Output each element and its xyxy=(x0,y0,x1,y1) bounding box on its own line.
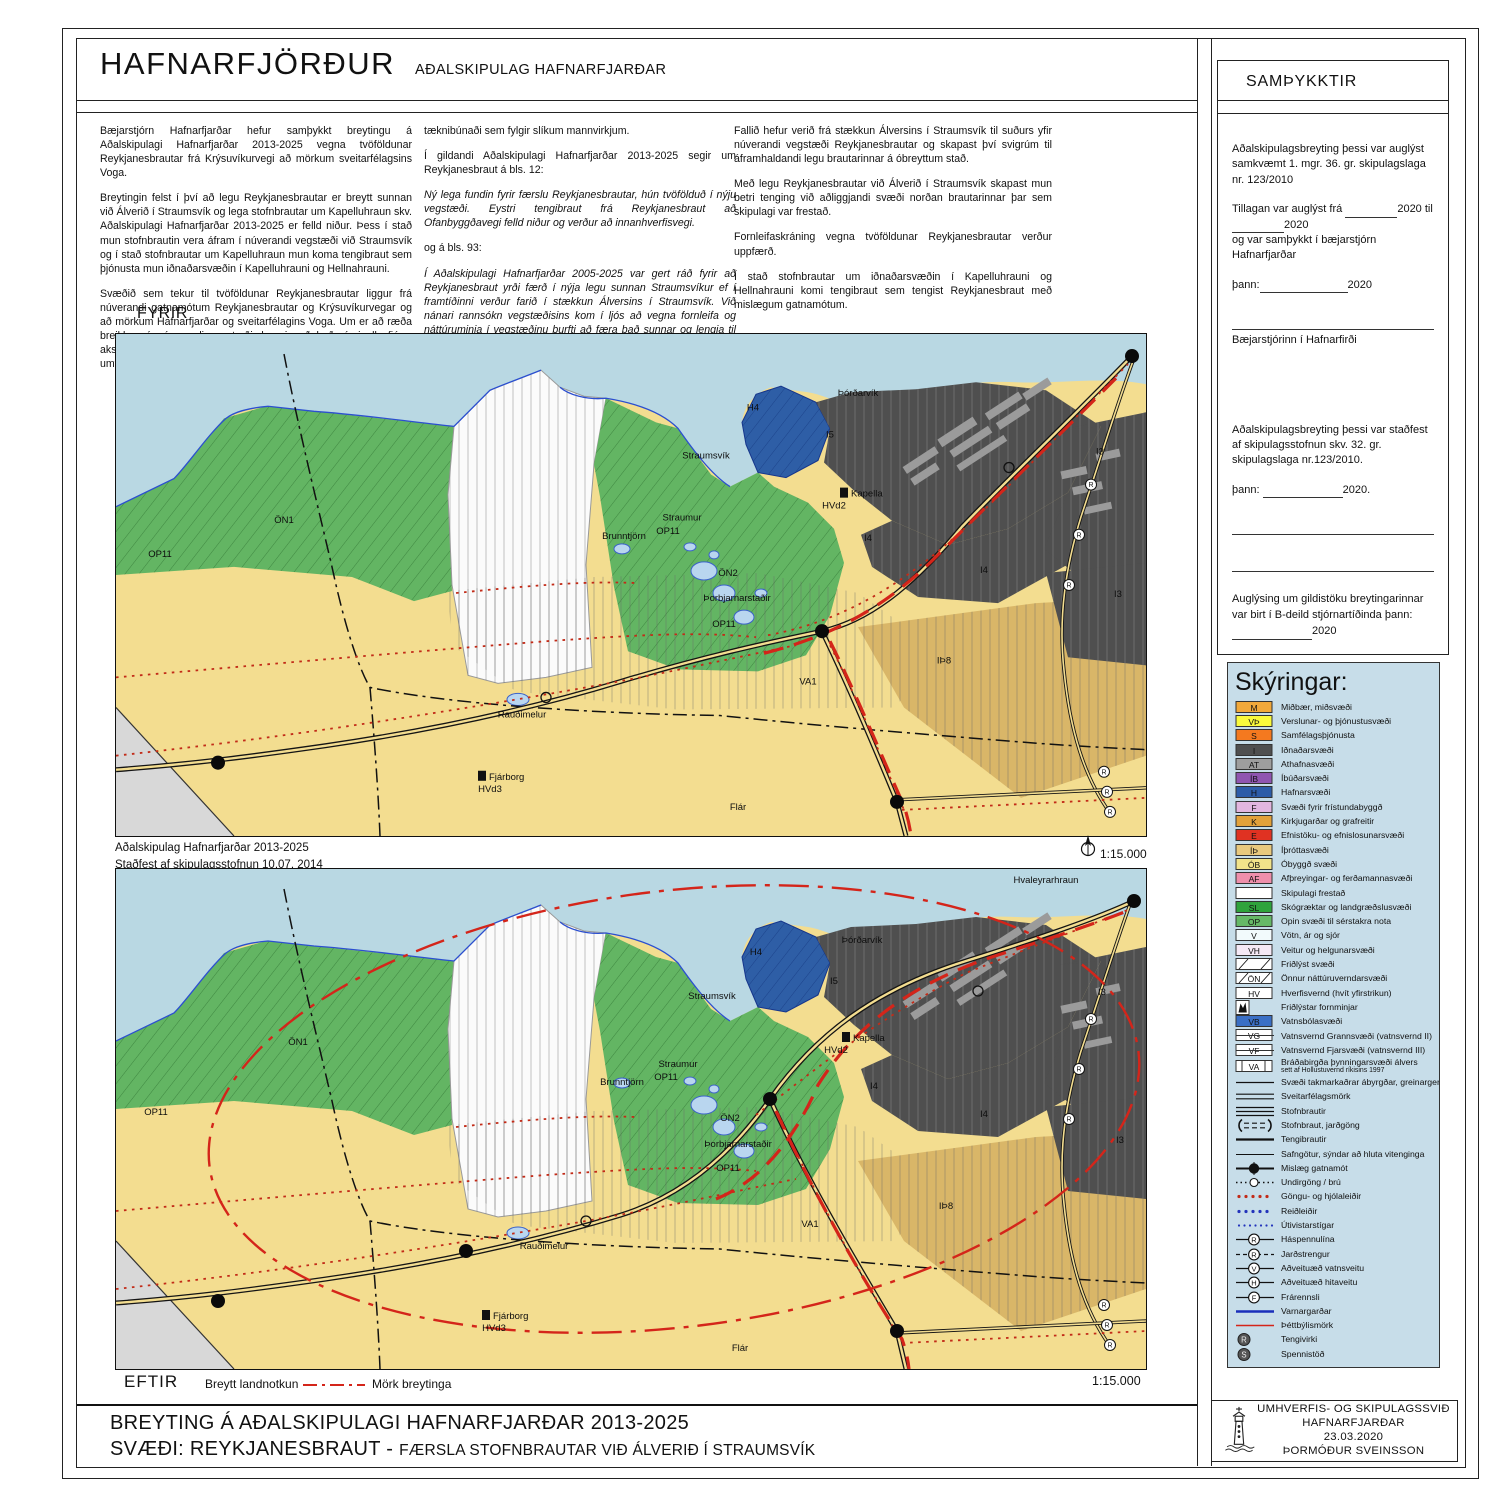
legend-swatch-line-double xyxy=(1235,1089,1277,1104)
intro-paragraph: Breytingin felst í því að legu Reykjanes… xyxy=(100,191,412,275)
svg-text:I4: I4 xyxy=(980,565,988,576)
column-divider xyxy=(1197,38,1198,1466)
svg-text:R: R xyxy=(1088,1017,1093,1024)
map-after: RRRRRRÖN1OP11BrunntjörnStraumurOP11Strau… xyxy=(115,868,1147,1370)
svg-text:Fjárborg: Fjárborg xyxy=(489,772,524,783)
legend-label: Stofnbrautir xyxy=(1281,1107,1326,1116)
approvals-panel: SAMÞYKKTIR Aðalskipulagsbreyting þessi v… xyxy=(1217,60,1449,655)
legend-item: VVötn, ár og sjór xyxy=(1228,929,1439,943)
legend-label: Aðveituæð vatnsveitu xyxy=(1281,1264,1364,1273)
legend-item: FFrárennsli xyxy=(1228,1290,1439,1304)
svg-text:Þórðarvík: Þórðarvík xyxy=(838,388,879,399)
svg-text:R: R xyxy=(1066,583,1071,590)
legend-label: Skógræktar og landgræðslusvæði xyxy=(1281,903,1411,912)
svg-text:Flár: Flár xyxy=(732,1343,748,1354)
approvals-p4: Aðalskipulagsbreyting þessi var staðfest… xyxy=(1232,423,1434,469)
approvals-p3: þann:2020 xyxy=(1232,278,1434,293)
legend-swatch-circle-letter: V xyxy=(1235,1261,1277,1276)
scale-after: 1:15.000 xyxy=(1092,1374,1141,1388)
svg-text:I4: I4 xyxy=(980,1109,988,1120)
legend-label: Hverfisvernd (hvít yfirstrikun) xyxy=(1281,989,1392,998)
legend-label: Jarðstrengur xyxy=(1281,1250,1330,1259)
svg-text:R: R xyxy=(1101,769,1106,776)
legend-label: Háspennulína xyxy=(1281,1235,1335,1244)
legend-swatch-I: I xyxy=(1235,743,1277,758)
legend-label: Svæði fyrir frístundabyggð xyxy=(1281,803,1382,812)
legend-swatch-AT: AT xyxy=(1235,757,1277,772)
legend-item: VHVeitur og helgunarsvæði xyxy=(1228,943,1439,957)
legend-item: Safngötur, sýndar að hluta vitenginga xyxy=(1228,1147,1439,1161)
svg-text:Kapella: Kapella xyxy=(851,489,883,500)
svg-text:F: F xyxy=(1252,1293,1257,1302)
svg-text:HV: HV xyxy=(1248,989,1260,999)
legend-swatch-monument xyxy=(1235,1000,1277,1015)
svg-text:Fjárborg: Fjárborg xyxy=(493,1311,528,1322)
legend-label: Útivistarstígar xyxy=(1281,1221,1334,1230)
legend-item: Tengibrautir xyxy=(1228,1133,1439,1147)
approvals-heading-band xyxy=(1218,101,1448,114)
approvals-p1: Aðalskipulagsbreyting þessi var auglýst … xyxy=(1232,142,1434,188)
legend-swatch-dots-red xyxy=(1235,1189,1277,1204)
footer-title-line1: BREYTING Á AÐALSKIPULAGI HAFNARFJARÐAR 2… xyxy=(110,1412,689,1435)
legend-item: SLSkógræktar og landgræðslusvæði xyxy=(1228,900,1439,914)
legend-label: Afþreyingar- og ferðamannasvæði xyxy=(1281,874,1412,883)
footer-area-detail: FÆRSLA STOFNBRAUTAR VIÐ ÁLVERIÐ Í STRAUM… xyxy=(399,1442,815,1459)
legend-label: Vatnsvernd Fjarsvæði (vatnsvernd III) xyxy=(1281,1046,1425,1055)
legend-label: Athafnasvæði xyxy=(1281,760,1334,769)
legend-swatch-ÍB: ÍB xyxy=(1235,771,1277,786)
blank-field xyxy=(1260,281,1348,293)
legend-label: Tengivirki xyxy=(1281,1335,1317,1344)
legend-swatch-H: H xyxy=(1235,785,1277,800)
legend-label: Óbyggð svæði xyxy=(1281,860,1337,869)
plan-sheet: HAFNARFJÖRÐUR AÐALSKIPULAG HAFNARFJARÐAR… xyxy=(0,0,1500,1502)
svg-text:H: H xyxy=(1251,1279,1256,1288)
legend-item: RTengivirki xyxy=(1228,1333,1439,1347)
legend-label: Vatnsbólasvæði xyxy=(1281,1017,1342,1026)
intro-column-3: Fallið hefur verið frá stækkun Álversins… xyxy=(734,124,1052,323)
legend-label: Þéttbýlismörk xyxy=(1281,1321,1333,1330)
legend-item: SSamfélagsþjónusta xyxy=(1228,729,1439,743)
legend-label: Skipulagi frestað xyxy=(1281,889,1345,898)
intro-paragraph: Ný lega fundin fyrir færslu Reykjanesbra… xyxy=(424,188,736,230)
svg-text:I4: I4 xyxy=(870,1081,878,1092)
legend-swatch-dots-blue-sm xyxy=(1235,1218,1277,1233)
legend-swatch-VH: VH xyxy=(1235,943,1277,958)
svg-text:OP11: OP11 xyxy=(656,526,680,537)
svg-text:R: R xyxy=(1107,1343,1112,1350)
blank-field xyxy=(1263,486,1343,498)
svg-text:I3: I3 xyxy=(1114,589,1122,600)
legend-label: Önnur náttúruverndarsvæði xyxy=(1281,974,1387,983)
legend-swatch-SL: SL xyxy=(1235,900,1277,915)
legend-item: RJarðstrengur xyxy=(1228,1247,1439,1261)
legend-item: ATAthafnasvæði xyxy=(1228,757,1439,771)
header-rule xyxy=(77,112,1197,113)
stamp-line: HAFNARFJARÐAR xyxy=(1256,1417,1451,1431)
svg-text:Þórðarvík: Þórðarvík xyxy=(842,935,883,946)
legend-swatch-V: V xyxy=(1235,928,1277,943)
svg-text:Rauðimelur: Rauðimelur xyxy=(498,710,546,721)
intro-paragraph: Í stað stofnbrautar um iðnaðarsvæðin í K… xyxy=(734,270,1052,312)
footer-area-label: SVÆÐI: REYKJANESBRAUT - xyxy=(110,1438,399,1460)
legend-label: Íþróttasvæði xyxy=(1281,846,1329,855)
legend-label: Samfélagsþjónusta xyxy=(1281,731,1355,740)
svg-text:H: H xyxy=(1251,788,1257,798)
legend-label: Friðlýstar fornminjar xyxy=(1281,1003,1358,1012)
blank-field xyxy=(1232,221,1284,233)
legend-item: HVHverfisvernd (hvít yfirstrikun) xyxy=(1228,986,1439,1000)
legend-swatch-circle-letter: H xyxy=(1235,1275,1277,1290)
legend-label: Efnistöku- og efnislosunarsvæði xyxy=(1281,831,1404,840)
svg-text:R: R xyxy=(1104,789,1109,796)
svg-text:OP11: OP11 xyxy=(148,549,172,560)
svg-text:Straumsvík: Straumsvík xyxy=(682,450,730,461)
legend-label: Miðbær, miðsvæði xyxy=(1281,703,1352,712)
svg-text:I5: I5 xyxy=(830,976,838,987)
svg-text:I3: I3 xyxy=(1096,446,1104,457)
svg-text:ÍÞ: ÍÞ xyxy=(1250,846,1258,856)
legend-label: Friðlýst svæði xyxy=(1281,960,1335,969)
svg-text:IÞ8: IÞ8 xyxy=(937,655,951,666)
legend-swatch-hatch xyxy=(1235,957,1277,972)
svg-text:E: E xyxy=(1251,831,1257,841)
svg-text:HVd3: HVd3 xyxy=(482,1323,506,1334)
legend-swatch-E: E xyxy=(1235,828,1277,843)
legend-item: Varnargarðar xyxy=(1228,1304,1439,1318)
legend-label: Varnargarðar xyxy=(1281,1307,1332,1316)
svg-text:OP11: OP11 xyxy=(654,1072,678,1083)
legend-item: ÓBÓbyggð svæði xyxy=(1228,857,1439,871)
svg-text:Brunntjörn: Brunntjörn xyxy=(600,1077,644,1088)
svg-text:IÞ8: IÞ8 xyxy=(939,1201,953,1212)
legend-label: Sveitarfélagsmörk xyxy=(1281,1092,1351,1101)
legend-label: Bráðabirgða þynningarsvæði álverssett af… xyxy=(1281,1058,1418,1074)
legend-swatch-M: M xyxy=(1235,700,1277,715)
svg-text:HVd3: HVd3 xyxy=(478,784,502,795)
legend-item: IIðnaðarsvæði xyxy=(1228,743,1439,757)
legend-item: ÖNÖnnur náttúruverndarsvæði xyxy=(1228,972,1439,986)
legend-item: FSvæði fyrir frístundabyggð xyxy=(1228,800,1439,814)
north-arrow-icon xyxy=(1078,834,1098,861)
svg-text:OP: OP xyxy=(1248,917,1261,927)
map-before-label: FYRIR xyxy=(137,305,188,323)
approvals-sig1: Bæjarstjórinn í Hafnarfirði xyxy=(1232,333,1434,348)
legend-label: Svæði takmarkaðrar ábyrgðar, greinargerð… xyxy=(1281,1078,1440,1087)
changed-landuse-label: Breytt landnotkun xyxy=(205,1377,298,1391)
legend-label: Aðveituæð hitaveitu xyxy=(1281,1278,1357,1287)
legend-label: Iðnaðarsvæði xyxy=(1281,746,1334,755)
svg-text:ÖN2: ÖN2 xyxy=(718,568,738,579)
legend-item: Reiðleiðir xyxy=(1228,1204,1439,1218)
legend-item: HHafnarsvæði xyxy=(1228,786,1439,800)
legend-label: Göngu- og hjólaleiðir xyxy=(1281,1192,1361,1201)
scale-before: 1:15.000 xyxy=(1078,834,1147,861)
legend-item: Útivistarstígar xyxy=(1228,1218,1439,1232)
map-before-canvas: RRRRRRÖN1OP11BrunntjörnStraumurOP11Strau… xyxy=(116,334,1146,836)
legend-item: Skipulagi frestað xyxy=(1228,886,1439,900)
legend-swatch-AF: AF xyxy=(1235,871,1277,886)
svg-text:OP11: OP11 xyxy=(712,619,736,630)
legend-swatch-S: S xyxy=(1235,728,1277,743)
legend-item: Undirgöng / brú xyxy=(1228,1176,1439,1190)
legend-swatch-F: F xyxy=(1235,800,1277,815)
svg-text:VA: VA xyxy=(1249,1062,1260,1072)
svg-text:R: R xyxy=(1107,810,1112,817)
map-after-canvas: RRRRRRÖN1OP11BrunntjörnStraumurOP11Strau… xyxy=(116,869,1146,1369)
caption-line1: Aðalskipulag Hafnarfjarðar 2013-2025 xyxy=(115,840,323,857)
approvals-p6: Auglýsing um gildistöku breytingarinnar … xyxy=(1232,592,1438,640)
svg-text:K: K xyxy=(1251,817,1257,827)
svg-text:I5: I5 xyxy=(826,429,834,440)
header-rule xyxy=(77,100,1197,101)
intro-paragraph: tæknibúnaði sem fylgir slíkum mannvirkju… xyxy=(424,124,736,138)
svg-text:M: M xyxy=(1250,703,1257,713)
svg-text:AF: AF xyxy=(1249,874,1260,884)
legend-swatch-VB: VB xyxy=(1235,1014,1277,1029)
legend-item: Stofnbrautir xyxy=(1228,1104,1439,1118)
legend-item: VÞVerslunar- og þjónustusvæði xyxy=(1228,714,1439,728)
svg-text:H4: H4 xyxy=(750,947,762,958)
signature-line xyxy=(1232,317,1434,330)
legend-label: Vötn, ár og sjór xyxy=(1281,931,1340,940)
svg-text:R: R xyxy=(1241,1336,1247,1345)
legend-label: Spennistöð xyxy=(1281,1350,1324,1359)
intro-paragraph: Bæjarstjórn Hafnarfjarðar hefur samþykkt… xyxy=(100,124,412,180)
legend-item: Stofnbraut, jarðgöng xyxy=(1228,1118,1439,1132)
change-boundary-sample-line xyxy=(302,1377,366,1395)
svg-text:Flár: Flár xyxy=(730,802,746,813)
legend-panel: Skýringar: MMiðbær, miðsvæðiVÞVerslunar-… xyxy=(1227,662,1440,1368)
legend-item: SSpennistöð xyxy=(1228,1347,1439,1361)
svg-text:R: R xyxy=(1066,1117,1071,1124)
svg-text:Straumur: Straumur xyxy=(658,1059,697,1070)
legend-swatch-circle-letter: F xyxy=(1235,1290,1277,1305)
svg-text:ÖN1: ÖN1 xyxy=(288,1037,308,1048)
svg-text:Straumsvík: Straumsvík xyxy=(688,991,736,1002)
legend-swatch-OP: OP xyxy=(1235,914,1277,929)
legend-swatch-circle-letter: R xyxy=(1235,1232,1277,1247)
svg-text:Kapella: Kapella xyxy=(853,1033,885,1044)
legend-item: Göngu- og hjólaleiðir xyxy=(1228,1190,1439,1204)
svg-text:V: V xyxy=(1251,1264,1256,1273)
svg-text:HVd2: HVd2 xyxy=(822,501,846,512)
legend-item: AFAfþreyingar- og ferðamannasvæði xyxy=(1228,872,1439,886)
svg-text:S: S xyxy=(1241,1350,1246,1359)
svg-text:ÓB: ÓB xyxy=(1248,860,1261,870)
svg-text:Rauðimelur: Rauðimelur xyxy=(520,1241,569,1252)
footer-rule xyxy=(77,1404,1197,1406)
department-stamp: UMHVERFIS- OG SKIPULAGSSVIÐHAFNARFJARÐAR… xyxy=(1211,1400,1458,1462)
legend-label: Kirkjugarðar og grafreitir xyxy=(1281,817,1374,826)
svg-text:VH: VH xyxy=(1248,946,1260,956)
legend-item: MMiðbær, miðsvæði xyxy=(1228,700,1439,714)
svg-text:OP11: OP11 xyxy=(716,1163,740,1174)
intro-paragraph: og á bls. 93: xyxy=(424,241,736,255)
legend-item: Friðlýst svæði xyxy=(1228,957,1439,971)
intro-paragraph: Í gildandi Aðalskipulagi Hafnarfjarðar 2… xyxy=(424,149,736,177)
legend-swatch-K: K xyxy=(1235,814,1277,829)
svg-text:HVd2: HVd2 xyxy=(824,1045,848,1056)
svg-text:H4: H4 xyxy=(747,402,759,413)
legend-item: OPOpin svæði til sérstakra nota xyxy=(1228,914,1439,928)
svg-text:ÖN2: ÖN2 xyxy=(720,1113,740,1124)
svg-text:R: R xyxy=(1076,1067,1081,1074)
svg-text:VA1: VA1 xyxy=(799,676,816,687)
legend-swatch-VA: VA xyxy=(1235,1059,1277,1074)
legend-swatch-junction xyxy=(1235,1161,1277,1176)
legend-swatch-ÓB: ÓB xyxy=(1235,857,1277,872)
legend-item: Svæði takmarkaðrar ábyrgðar, greinargerð… xyxy=(1228,1075,1439,1089)
legend-label: Opin svæði til sérstakra nota xyxy=(1281,917,1391,926)
legend-label: Hafnarsvæði xyxy=(1281,788,1330,797)
stamp-line: UMHVERFIS- OG SKIPULAGSSVIÐ xyxy=(1256,1403,1451,1417)
legend-item: Mislæg gatnamót xyxy=(1228,1161,1439,1175)
legend-item: VAðveituæð vatnsveitu xyxy=(1228,1261,1439,1275)
intro-paragraph: Fornleifaskráning vegna tvöföldunar Reyk… xyxy=(734,230,1052,258)
legend-swatch-line-medium xyxy=(1235,1132,1277,1147)
svg-text:R: R xyxy=(1076,532,1081,539)
legend-swatch-VF: VF xyxy=(1235,1043,1277,1058)
intro-paragraph: Með legu Reykjanesbrautar við Álverið í … xyxy=(734,177,1052,219)
legend-heading: Skýringar: xyxy=(1235,668,1439,697)
approvals-p2: Tillagan var auglýst frá 2020 til 2020 o… xyxy=(1232,202,1434,264)
svg-text:I4: I4 xyxy=(864,533,872,544)
legend-label: Frárennsli xyxy=(1281,1293,1320,1302)
signature-line xyxy=(1232,522,1434,535)
stamp-text: UMHVERFIS- OG SKIPULAGSSVIÐHAFNARFJARÐAR… xyxy=(1256,1403,1451,1458)
legend-label: Tengibrautir xyxy=(1281,1135,1326,1144)
legend-swatch-fcircle: S xyxy=(1235,1347,1277,1362)
legend-rows: MMiðbær, miðsvæðiVÞVerslunar- og þjónust… xyxy=(1228,700,1439,1361)
legend-label: Safngötur, sýndar að hluta vitenginga xyxy=(1281,1150,1424,1159)
legend-swatch-line-triple xyxy=(1235,1104,1277,1119)
legend-swatch-HV: HV xyxy=(1235,986,1277,1001)
svg-text:R: R xyxy=(1101,1303,1106,1310)
legend-swatch-underpass xyxy=(1235,1175,1277,1190)
legend-swatch-tunnel xyxy=(1235,1118,1277,1133)
column-divider xyxy=(1211,38,1212,1466)
legend-item: KKirkjugarðar og grafreitir xyxy=(1228,814,1439,828)
svg-text:ÍB: ÍB xyxy=(1250,774,1258,784)
legend-item: VFVatnsvernd Fjarsvæði (vatnsvernd III) xyxy=(1228,1043,1439,1057)
svg-text:I3: I3 xyxy=(1098,987,1106,998)
plan-subtitle: AÐALSKIPULAG HAFNARFJARÐAR xyxy=(415,62,666,78)
map-after-label: EFTIR xyxy=(124,1372,178,1392)
blank-field xyxy=(1232,628,1312,640)
legend-label: Reiðleiðir xyxy=(1281,1207,1317,1216)
svg-text:ÖN1: ÖN1 xyxy=(274,515,294,526)
legend-label: Stofnbraut, jarðgöng xyxy=(1281,1121,1360,1130)
approvals-heading: SAMÞYKKTIR xyxy=(1218,61,1448,101)
legend-item: EEfnistöku- og efnislosunarsvæði xyxy=(1228,829,1439,843)
legend-swatch-VG: VG xyxy=(1235,1028,1277,1043)
svg-text:Þorbjarnarstaðir: Þorbjarnarstaðir xyxy=(704,1139,772,1150)
legend-item: VGVatnsvernd Grannsvæði (vatnsvernd II) xyxy=(1228,1029,1439,1043)
svg-text:R: R xyxy=(1088,482,1093,489)
legend-label: Mislæg gatnamót xyxy=(1281,1164,1348,1173)
svg-text:I: I xyxy=(1253,746,1255,756)
legend-swatch-dots-blue xyxy=(1235,1204,1277,1219)
svg-text:VB: VB xyxy=(1248,1017,1260,1027)
legend-item: Friðlýstar fornminjar xyxy=(1228,1000,1439,1014)
legend-item: ÍBÍbúðarsvæði xyxy=(1228,771,1439,785)
legend-label: Undirgöng / brú xyxy=(1281,1178,1341,1187)
footer-title-line2: SVÆÐI: REYKJANESBRAUT - FÆRSLA STOFNBRAU… xyxy=(110,1438,815,1461)
svg-text:OP11: OP11 xyxy=(144,1107,168,1118)
legend-swatch-box xyxy=(1235,886,1277,901)
signature-line xyxy=(1232,559,1434,572)
svg-text:V: V xyxy=(1251,931,1257,941)
svg-text:Straumur: Straumur xyxy=(662,513,701,524)
svg-text:R: R xyxy=(1251,1250,1257,1259)
svg-text:I3: I3 xyxy=(1116,1135,1124,1146)
legend-swatch-line-thin2 xyxy=(1235,1147,1277,1162)
change-boundary-label: Mörk breytinga xyxy=(372,1377,451,1391)
lighthouse-icon xyxy=(1222,1404,1256,1459)
legend-swatch-fcircle: R xyxy=(1235,1332,1277,1347)
svg-text:Brunntjörn: Brunntjörn xyxy=(602,531,646,542)
legend-swatch-ÖN: ÖN xyxy=(1235,971,1277,986)
stamp-line: 23.03.2020 xyxy=(1256,1431,1451,1445)
svg-text:Hvaleyrarhraun: Hvaleyrarhraun xyxy=(1014,875,1079,886)
legend-item: RHáspennulína xyxy=(1228,1233,1439,1247)
scale-before-value: 1:15.000 xyxy=(1100,847,1147,861)
svg-text:ÖN: ÖN xyxy=(1248,974,1261,984)
svg-text:SL: SL xyxy=(1249,903,1260,913)
legend-swatch-ÍÞ: ÍÞ xyxy=(1235,843,1277,858)
legend-swatch-line-thin xyxy=(1235,1075,1277,1090)
legend-label: Vatnsvernd Grannsvæði (vatnsvernd II) xyxy=(1281,1032,1432,1041)
svg-text:Þorbjarnarstaðir: Þorbjarnarstaðir xyxy=(703,593,770,604)
svg-text:S: S xyxy=(1251,731,1257,741)
svg-text:R: R xyxy=(1104,1323,1109,1330)
legend-swatch-line-blue xyxy=(1235,1304,1277,1319)
blank-field xyxy=(1345,206,1397,218)
legend-label: Veitur og helgunarsvæði xyxy=(1281,946,1375,955)
svg-text:AT: AT xyxy=(1249,760,1259,770)
legend-item: VABráðabirgða þynningarsvæði álverssett … xyxy=(1228,1057,1439,1075)
legend-swatch-circle-letter-dash: R xyxy=(1235,1247,1277,1262)
map-before: RRRRRRÖN1OP11BrunntjörnStraumurOP11Strau… xyxy=(115,333,1147,837)
svg-text:R: R xyxy=(1251,1236,1257,1245)
legend-item: Sveitarfélagsmörk xyxy=(1228,1090,1439,1104)
approvals-p5: þann: 2020. xyxy=(1232,483,1434,498)
intro-paragraph: Fallið hefur verið frá stækkun Álversins… xyxy=(734,124,1052,166)
legend-swatch-line-red xyxy=(1235,1318,1277,1333)
municipality-title: HAFNARFJÖRÐUR xyxy=(100,46,395,82)
svg-text:F: F xyxy=(1251,803,1256,813)
legend-item: VBVatnsbólasvæði xyxy=(1228,1015,1439,1029)
legend-swatch-VÞ: VÞ xyxy=(1235,714,1277,729)
svg-text:VÞ: VÞ xyxy=(1248,717,1260,727)
svg-text:VA1: VA1 xyxy=(801,1219,818,1230)
legend-item: Þéttbýlismörk xyxy=(1228,1318,1439,1332)
legend-label: Verslunar- og þjónustusvæði xyxy=(1281,717,1391,726)
legend-label: Íbúðarsvæði xyxy=(1281,774,1329,783)
stamp-line: ÞORMÓÐUR SVEINSSON xyxy=(1256,1445,1451,1459)
legend-item: ÍÞÍþróttasvæði xyxy=(1228,843,1439,857)
legend-item: HAðveituæð hitaveitu xyxy=(1228,1276,1439,1290)
